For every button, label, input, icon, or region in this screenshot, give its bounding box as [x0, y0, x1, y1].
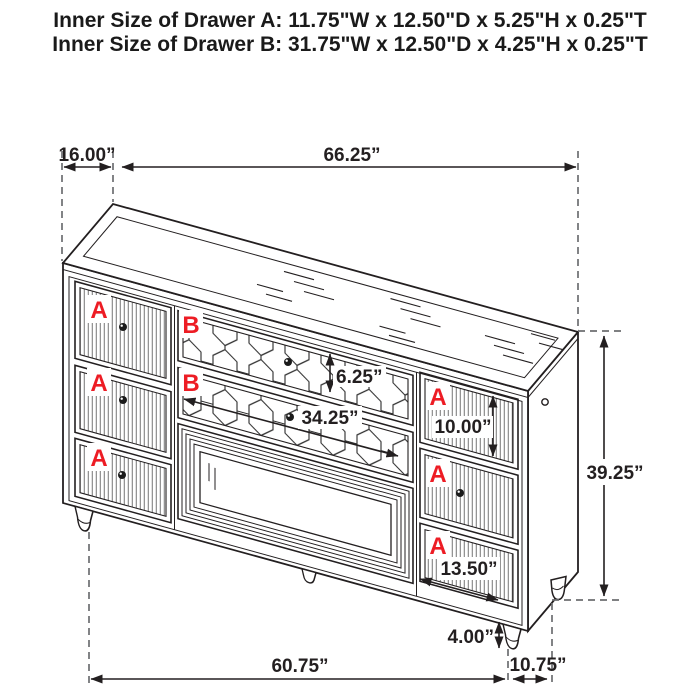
label-drawer-a1: A [90, 297, 107, 324]
label-drawer-a5: A [429, 461, 446, 488]
dim-bottom-depth: 10.75” [509, 655, 566, 679]
knob [119, 396, 127, 404]
front-left-leg [75, 506, 93, 533]
label-drawer-b2: B [182, 370, 199, 397]
svg-text:10.00”: 10.00” [434, 417, 491, 438]
label-drawer-a3: A [90, 445, 107, 472]
svg-text:16.00”: 16.00” [58, 145, 115, 166]
front-right-leg [503, 624, 521, 651]
label-drawer-a6: A [429, 533, 446, 560]
side-panel-knob [542, 399, 548, 405]
svg-text:34.25”: 34.25” [301, 408, 358, 429]
dim-bottom-width: 60.75” [91, 656, 505, 679]
label-drawer-a4: A [429, 384, 446, 411]
dresser-dimension-diagram: Inner Size of Drawer A: 11.75"W x 12.50"… [0, 0, 700, 700]
dim-top-width: 66.25” [122, 145, 576, 167]
svg-text:4.00”: 4.00” [448, 627, 494, 648]
svg-text:13.50”: 13.50” [440, 559, 497, 580]
knob [118, 471, 126, 479]
knob [119, 323, 127, 331]
knob [286, 413, 294, 421]
label-drawer-a2: A [90, 370, 107, 397]
knob [284, 358, 292, 366]
dim-leg-height: 4.00” [448, 622, 499, 648]
svg-text:60.75”: 60.75” [271, 656, 328, 677]
svg-text:39.25”: 39.25” [586, 463, 643, 484]
knob [456, 489, 464, 497]
diagram-canvas: Inner Size of Drawer A: 11.75"W x 12.50"… [0, 0, 700, 700]
svg-text:66.25”: 66.25” [323, 145, 380, 166]
header-line-drawer-b: Inner Size of Drawer B: 31.75"W x 12.50"… [52, 33, 648, 56]
header-line-drawer-a: Inner Size of Drawer A: 11.75"W x 12.50"… [53, 9, 647, 32]
svg-text:6.25”: 6.25” [336, 367, 382, 388]
svg-text:10.75”: 10.75” [509, 655, 566, 676]
dim-total-height: 39.25” [583, 336, 647, 596]
label-drawer-b1: B [182, 312, 199, 339]
dim-top-depth: 16.00” [58, 145, 115, 167]
